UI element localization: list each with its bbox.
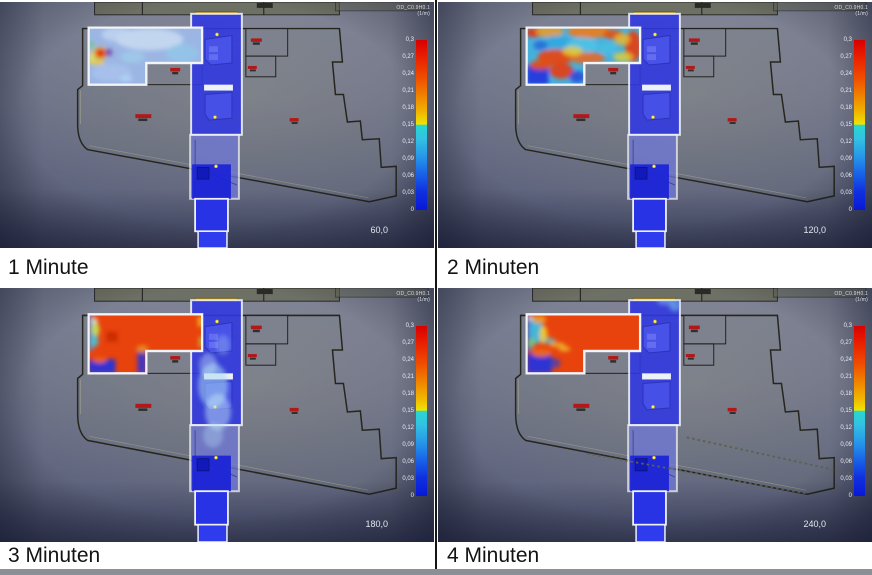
colorbar-tick: 0,12 xyxy=(402,139,414,145)
smoke-patch xyxy=(106,49,112,55)
colorbar-tick: 0,27 xyxy=(840,54,852,60)
minute-label-4: 4 Minuten xyxy=(436,542,872,569)
smoke-patch xyxy=(562,46,582,56)
colorbar-tick: 0,3 xyxy=(406,323,414,329)
timecode: 60,0 xyxy=(370,225,388,235)
minute-label-1: 1 Minute xyxy=(0,248,436,288)
colorbar-title: OD_C0.9H0.1(1/m) xyxy=(396,5,430,18)
timecode: 180,0 xyxy=(365,519,388,529)
smoke-patch xyxy=(613,52,633,62)
colorbar xyxy=(416,40,427,210)
colorbar-tick: 0,12 xyxy=(402,425,414,431)
colorbar-tick: 0,09 xyxy=(840,156,852,162)
colorbar-tick: 0,03 xyxy=(840,476,852,482)
colorbar-tick: 0,18 xyxy=(840,391,852,397)
smoke-patch xyxy=(216,335,230,355)
colorbar-tick: 0,3 xyxy=(844,37,852,43)
smoke-patch xyxy=(534,40,548,50)
colorbar xyxy=(416,326,427,496)
colorbar-tick: 0,21 xyxy=(840,88,852,94)
smoke-patch xyxy=(203,423,223,447)
colorbar-tick: 0 xyxy=(411,493,414,499)
colorbar-tick: 0,06 xyxy=(840,459,852,465)
colorbar-tick: 0,3 xyxy=(406,37,414,43)
colorbar-tick: 0,15 xyxy=(840,408,852,414)
timecode: 240,0 xyxy=(803,519,826,529)
colorbar-tick: 0,06 xyxy=(402,173,414,179)
colorbar-tick: 0,24 xyxy=(402,71,414,77)
smoke-patch xyxy=(569,71,585,83)
colorbar-tick: 0,03 xyxy=(402,476,414,482)
smoke-patch xyxy=(528,316,533,321)
smoke-patch xyxy=(91,335,99,347)
colorbar-tick: 0,12 xyxy=(840,425,852,431)
smoke-patch xyxy=(93,357,107,363)
smoke-plan-svg xyxy=(438,2,872,248)
bottom-gray-bar xyxy=(0,569,872,575)
smoke-patch xyxy=(558,346,570,351)
simulation-panel-1min: OD_C0.9H0.1(1/m) 0,30,270,240,210,180,15… xyxy=(0,2,434,248)
colorbar-tick: 0,06 xyxy=(402,459,414,465)
colorbar-ticks: 0,30,270,240,210,180,150,120,090,060,030 xyxy=(826,40,852,210)
simulation-panel-4min: OD_C0.9H0.1(1/m) 0,30,270,240,210,180,15… xyxy=(438,288,872,542)
smoke-patch xyxy=(137,351,146,373)
smoke-patch xyxy=(107,332,118,342)
smoke-patch xyxy=(533,315,547,323)
colorbar-tick: 0,21 xyxy=(402,374,414,380)
colorbar-tick: 0,27 xyxy=(402,54,414,60)
colorbar-ticks: 0,30,270,240,210,180,150,120,090,060,030 xyxy=(826,326,852,496)
colorbar-title: OD_C0.9H0.1(1/m) xyxy=(834,5,868,18)
smoke-patch xyxy=(120,51,144,63)
colorbar-tick: 0,06 xyxy=(840,173,852,179)
smoke-patch xyxy=(166,44,198,62)
colorbar-tick: 0,18 xyxy=(402,105,414,111)
colorbar-tick: 0,27 xyxy=(402,340,414,346)
colorbar xyxy=(854,326,865,496)
smoke-patch xyxy=(199,353,217,377)
colorbar-tick: 0,18 xyxy=(402,391,414,397)
figure-page: OD_C0.9H0.1(1/m) 0,30,270,240,210,180,15… xyxy=(0,0,872,575)
colorbar-tick: 0,15 xyxy=(840,122,852,128)
colorbar-tick: 0,24 xyxy=(840,357,852,363)
smoke-plan-svg xyxy=(0,288,434,542)
colorbar-tick: 0,21 xyxy=(840,374,852,380)
column-divider-line xyxy=(435,0,437,569)
colorbar-ticks: 0,30,270,240,210,180,150,120,090,060,030 xyxy=(388,326,414,496)
timecode: 120,0 xyxy=(803,225,826,235)
smoke-patch xyxy=(598,42,616,54)
smoke-patch xyxy=(120,76,132,82)
colorbar-tick: 0,24 xyxy=(840,71,852,77)
colorbar-ticks: 0,30,270,240,210,180,150,120,090,060,030 xyxy=(388,40,414,210)
colorbar-tick: 0 xyxy=(849,207,852,213)
smoke-patch xyxy=(614,33,630,45)
smoke-patch xyxy=(530,60,552,70)
smoke-patch xyxy=(91,41,93,48)
smoke-plan-svg xyxy=(438,288,872,542)
colorbar-tick: 0,03 xyxy=(402,190,414,196)
simulation-panel-3min: OD_C0.9H0.1(1/m) 0,30,270,240,210,180,15… xyxy=(0,288,434,542)
colorbar-tick: 0,27 xyxy=(840,340,852,346)
colorbar xyxy=(854,40,865,210)
colorbar-tick: 0,18 xyxy=(840,105,852,111)
colorbar-tick: 0 xyxy=(849,493,852,499)
simulation-panel-2min: OD_C0.9H0.1(1/m) 0,30,270,240,210,180,15… xyxy=(438,2,872,248)
colorbar-tick: 0,09 xyxy=(840,442,852,448)
colorbar-title: OD_C0.9H0.1(1/m) xyxy=(834,291,868,304)
smoke-patch xyxy=(548,358,560,368)
colorbar-tick: 0,12 xyxy=(840,139,852,145)
colorbar-tick: 0 xyxy=(411,207,414,213)
colorbar-tick: 0,09 xyxy=(402,156,414,162)
minute-label-2: 2 Minuten xyxy=(436,248,872,288)
colorbar-tick: 0,15 xyxy=(402,122,414,128)
colorbar-tick: 0,09 xyxy=(402,442,414,448)
smoke-patch xyxy=(102,28,134,42)
smoke-patch xyxy=(532,349,552,357)
smoke-patch xyxy=(529,338,535,348)
colorbar-tick: 0,03 xyxy=(840,190,852,196)
smoke-patch xyxy=(92,323,100,337)
colorbar-tick: 0,15 xyxy=(402,408,414,414)
colorbar-tick: 0,3 xyxy=(844,323,852,329)
colorbar-tick: 0,24 xyxy=(402,357,414,363)
minute-label-3: 3 Minuten xyxy=(0,542,436,569)
smoke-plan-svg xyxy=(0,2,434,248)
smoke-patch xyxy=(96,49,105,57)
colorbar-tick: 0,21 xyxy=(402,88,414,94)
colorbar-title: OD_C0.9H0.1(1/m) xyxy=(396,291,430,304)
